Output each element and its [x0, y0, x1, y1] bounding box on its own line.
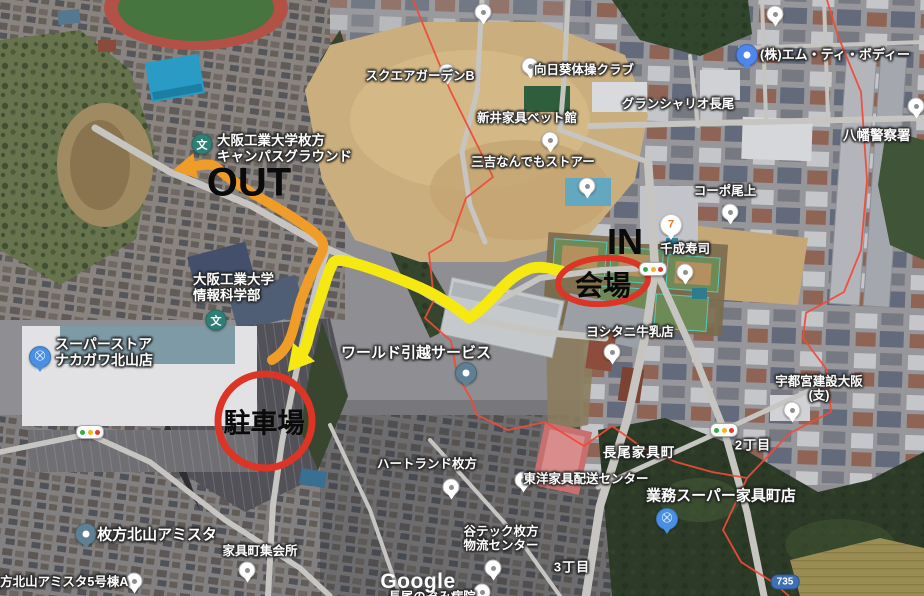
map-label[interactable]: 業務スーパー家具町店 [646, 487, 796, 504]
map-label[interactable]: 千成寿司 [660, 242, 710, 256]
place-pin[interactable] [736, 44, 758, 66]
traffic-light-icon [76, 425, 104, 439]
map-label[interactable]: 3丁目 [554, 561, 590, 576]
school-icon[interactable]: 文 [192, 134, 213, 155]
in-route-line [300, 260, 561, 357]
annotation-in: IN [607, 221, 643, 263]
poi-pin[interactable] [604, 344, 621, 361]
map-label[interactable]: グランシャリオ長尾 [622, 97, 735, 111]
map-label[interactable]: スーパーストア ナカガワ北山店 [55, 336, 153, 368]
map-label[interactable]: ハートランド枚方 [377, 457, 477, 471]
map-label[interactable]: 枚方北山アミスタ [97, 526, 217, 543]
poi-pin[interactable] [722, 204, 739, 221]
map-label[interactable]: 2丁目 [735, 439, 771, 454]
map-label[interactable]: スクエアガーデンB [365, 69, 474, 83]
map-label[interactable]: 宇都宮建設大阪(支) [767, 375, 872, 404]
map-label[interactable]: ヨシタニ牛乳店 [586, 325, 674, 339]
shopping-pin[interactable]: ⛒ [656, 508, 678, 530]
annotation-out: OUT [207, 161, 291, 206]
shopping-pin[interactable]: ⛒ [29, 346, 51, 368]
poi-pin[interactable] [784, 402, 801, 419]
map-label[interactable]: 大阪工業大学枚方 キャンパスグラウンド [217, 133, 352, 164]
poi-pin[interactable] [677, 264, 694, 281]
map-canvas[interactable]: ⛒⛒7文文 スクエアガーデンB向日葵体操クラブ(株)エム・ティ・ボディー八幡警察… [0, 0, 924, 596]
poi-pin[interactable] [239, 562, 256, 579]
route-overlay [0, 0, 924, 596]
map-label[interactable]: コーポ尾上 [694, 184, 757, 198]
map-label[interactable]: 大阪工業大学 情報科学部 [193, 272, 274, 303]
business-pin[interactable] [455, 362, 477, 384]
poi-pin[interactable] [485, 560, 502, 577]
map-label[interactable]: 三吉なんでもストアー [471, 155, 595, 169]
map-label[interactable]: 家具町集会所 [222, 544, 297, 558]
route-shield: 735 [771, 575, 800, 590]
map-label[interactable]: 向日葵体操クラブ [534, 63, 634, 77]
map-label[interactable]: 枚方北山アミスタ5号棟A [0, 575, 128, 589]
map-label[interactable]: (株)エム・ティ・ボディー [760, 48, 910, 63]
map-label[interactable]: 新井家具ベット館 [477, 111, 577, 125]
map-label[interactable]: ワールド引越サービス [341, 344, 491, 361]
map-label[interactable]: 八幡警察署 [843, 128, 911, 144]
seven-eleven-pin[interactable]: 7 [660, 214, 682, 236]
annotation-parking: 駐車場 [224, 402, 305, 441]
poi-pin[interactable] [475, 4, 492, 21]
business-pin[interactable] [75, 523, 97, 545]
traffic-light-icon [639, 262, 667, 276]
google-watermark: Google [380, 570, 455, 594]
poi-pin[interactable] [908, 98, 924, 115]
poi-pin[interactable] [767, 6, 784, 23]
map-label[interactable]: 谷テック枚方 物流センター [463, 525, 538, 554]
traffic-light-icon [710, 423, 738, 437]
poi-pin[interactable] [579, 178, 596, 195]
poi-pin[interactable] [443, 479, 460, 496]
poi-pin[interactable] [542, 132, 559, 149]
map-label[interactable]: 東洋家具配送センター [523, 472, 648, 486]
map-label[interactable]: 長尾家具町 [603, 445, 676, 461]
school-icon[interactable]: 文 [206, 310, 227, 331]
annotation-venue: 会場 [575, 264, 631, 304]
